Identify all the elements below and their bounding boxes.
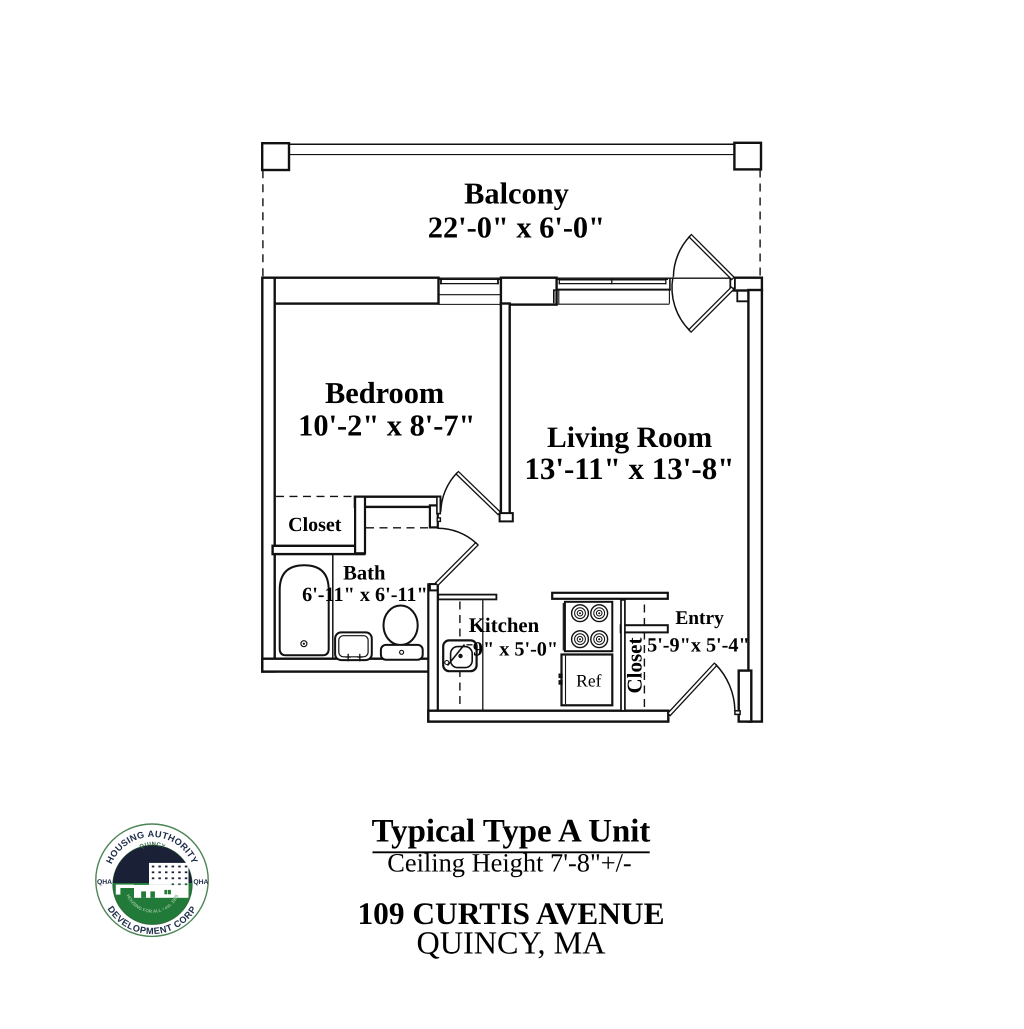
svg-text:6'-11" x 6'-11": 6'-11" x 6'-11" (302, 584, 428, 606)
svg-text:Bath: Bath (343, 563, 386, 585)
svg-text:QHA: QHA (97, 879, 112, 886)
svg-text:Kitchen: Kitchen (469, 614, 540, 637)
svg-text:Ref: Ref (576, 670, 601, 690)
svg-text:22'-0" x 6'-0": 22'-0" x 6'-0" (428, 211, 605, 245)
svg-text:Entry: Entry (675, 608, 724, 629)
svg-text:5'-9"x 5'-4": 5'-9"x 5'-4" (647, 635, 750, 657)
svg-text:Bedroom: Bedroom (325, 376, 444, 410)
svg-text:10'-2" x 8'-7": 10'-2" x 8'-7" (298, 408, 475, 442)
svg-text:Closet: Closet (288, 514, 342, 536)
svg-text:Typical Type A Unit: Typical Type A Unit (372, 814, 651, 850)
svg-text:Ceiling Height 7'-8"+/-: Ceiling Height 7'-8"+/- (387, 848, 631, 878)
svg-text:QUINCY, MA: QUINCY, MA (417, 925, 607, 961)
svg-text:QHA: QHA (193, 879, 208, 886)
svg-text:13'-11" x 13'-8": 13'-11" x 13'-8" (524, 451, 734, 486)
svg-text:9" x 5'-0": 9" x 5'-0" (473, 639, 558, 661)
svg-text:Living Room: Living Room (547, 422, 713, 454)
svg-text:Closet: Closet (622, 638, 646, 694)
svg-text:Balcony: Balcony (464, 176, 569, 210)
